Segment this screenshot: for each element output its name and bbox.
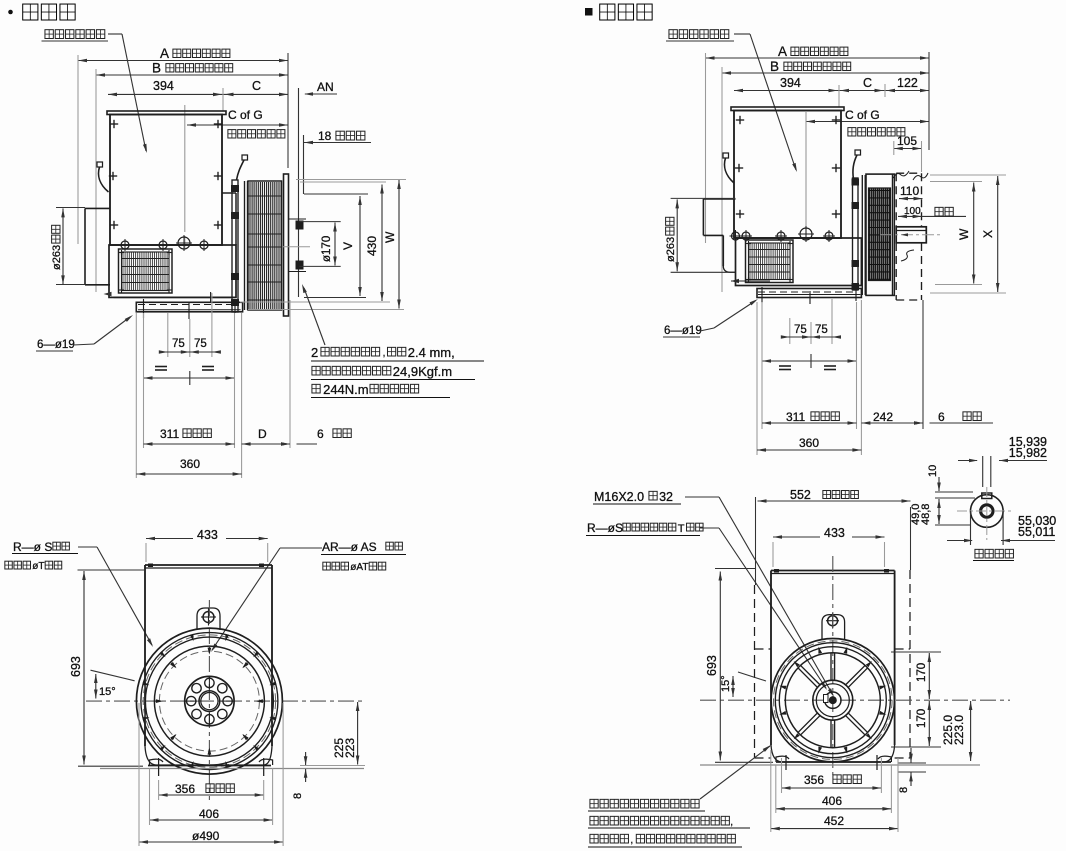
svg-text:A: A: [778, 44, 787, 59]
svg-text:ø490: ø490: [192, 829, 220, 843]
svg-text:105: 105: [897, 134, 917, 148]
svg-text:15°: 15°: [720, 675, 732, 692]
svg-text:15,982: 15,982: [1009, 446, 1047, 460]
svg-text:C of G: C of G: [845, 108, 880, 122]
svg-text:V: V: [341, 242, 355, 250]
svg-text:170: 170: [916, 709, 928, 728]
svg-text:75: 75: [815, 324, 828, 336]
svg-text:D: D: [258, 427, 267, 441]
svg-text:C: C: [252, 79, 261, 93]
svg-text:2: 2: [311, 345, 318, 360]
svg-text:122: 122: [897, 76, 918, 90]
svg-text:,: ,: [383, 348, 386, 359]
svg-text:242: 242: [873, 410, 893, 424]
svg-text:A: A: [160, 46, 169, 61]
svg-text:øT: øT: [32, 561, 44, 572]
svg-text:55,011: 55,011: [1018, 525, 1055, 539]
svg-text:C of G: C of G: [228, 108, 263, 122]
svg-text:8: 8: [898, 787, 910, 793]
svg-text:X: X: [981, 230, 995, 238]
svg-text:170: 170: [916, 663, 928, 682]
svg-text:360: 360: [799, 436, 819, 450]
svg-text:311: 311: [160, 427, 179, 441]
svg-text:24,9Kgf.m: 24,9Kgf.m: [393, 364, 452, 379]
svg-text:311: 311: [786, 410, 805, 424]
svg-text:430: 430: [365, 236, 379, 256]
svg-text:T: T: [678, 523, 685, 535]
svg-text:ø263: ø263: [51, 245, 63, 270]
svg-text:6: 6: [938, 410, 945, 424]
svg-text:,: ,: [730, 817, 733, 828]
svg-text:6—ø19: 6—ø19: [37, 339, 75, 351]
svg-text:18: 18: [318, 129, 332, 143]
svg-text:M16X2.0: M16X2.0: [594, 490, 644, 504]
svg-text:223.0: 223.0: [952, 715, 966, 745]
svg-text:øAT: øAT: [350, 562, 368, 573]
svg-text:B: B: [770, 59, 779, 74]
svg-text:75: 75: [794, 324, 807, 336]
svg-text:75: 75: [194, 338, 207, 350]
svg-text:394: 394: [153, 79, 174, 93]
svg-text:B: B: [152, 61, 161, 76]
svg-text:452: 452: [824, 814, 844, 828]
svg-text:110: 110: [900, 184, 919, 198]
svg-text:W: W: [383, 231, 397, 243]
svg-text:AN: AN: [317, 80, 334, 94]
svg-text:R—ø S: R—ø S: [13, 540, 52, 554]
svg-text:360: 360: [180, 457, 200, 471]
svg-text:394: 394: [780, 76, 801, 90]
svg-text:,: ,: [630, 835, 633, 846]
svg-text:AR—ø AS: AR—ø AS: [322, 540, 377, 554]
svg-text:48,8: 48,8: [920, 504, 932, 525]
svg-text:356: 356: [175, 782, 195, 796]
svg-text:15°: 15°: [99, 686, 116, 698]
svg-text:32: 32: [659, 490, 673, 504]
svg-text:C: C: [863, 76, 872, 90]
svg-text:406: 406: [822, 794, 842, 808]
svg-text:406: 406: [199, 807, 219, 821]
svg-text:6: 6: [317, 427, 324, 441]
svg-text:244N.m: 244N.m: [323, 382, 369, 397]
svg-text:10: 10: [927, 465, 939, 477]
svg-text:ø170: ø170: [321, 236, 333, 262]
svg-text:552: 552: [790, 488, 811, 502]
svg-text:693: 693: [705, 655, 719, 676]
svg-text:223: 223: [343, 738, 357, 758]
svg-text:ø263: ø263: [665, 237, 677, 262]
svg-text:356: 356: [804, 773, 824, 787]
svg-text:693: 693: [69, 656, 83, 677]
svg-text:R—øS: R—øS: [587, 521, 623, 535]
svg-text:8: 8: [292, 793, 304, 799]
svg-text:433: 433: [197, 528, 218, 542]
svg-text:2.4 mm,: 2.4 mm,: [408, 345, 455, 360]
svg-text:W: W: [957, 228, 971, 240]
svg-text:6—ø19: 6—ø19: [664, 325, 702, 337]
svg-text:75: 75: [172, 338, 185, 350]
svg-text:433: 433: [824, 526, 845, 540]
